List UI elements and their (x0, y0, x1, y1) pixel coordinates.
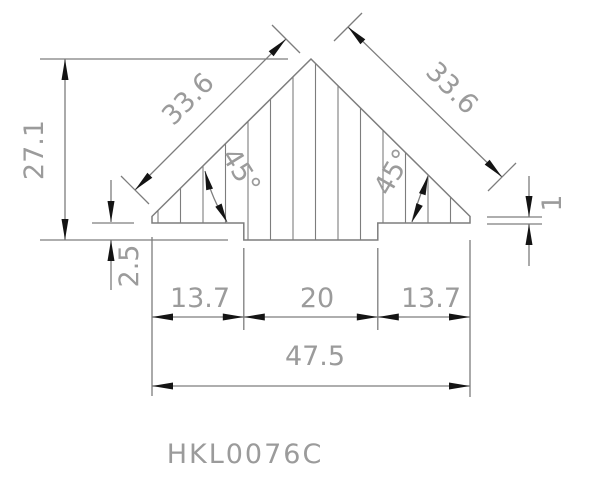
dim-angle-right: 45° (368, 144, 428, 222)
dim-slope-left-label: 33.6 (156, 67, 220, 131)
dim-angle-right-label: 45° (368, 144, 419, 201)
dim-slope-left: 33.6 (121, 25, 300, 204)
dim-slope-right-label: 33.6 (419, 56, 483, 120)
dim-angle-left-label: 45° (215, 143, 267, 200)
dim-overall-width: 47.5 (152, 341, 470, 390)
dim-step-depth: 2.5 (92, 180, 145, 290)
dim-tip-height-label: 1 (537, 194, 568, 211)
technical-drawing: 27.1 2.5 1 33.6 33.6 (0, 0, 600, 495)
dim-bottom-left-label: 13.7 (170, 283, 230, 314)
dim-bottom-chain: 13.7 20 13.7 (152, 237, 470, 397)
part-number-label: HKL0076C (167, 439, 324, 470)
dim-step-depth-label: 2.5 (114, 245, 145, 288)
dim-slope-right: 33.6 (334, 13, 516, 191)
dim-bottom-center-label: 20 (300, 283, 334, 314)
dim-overall-width-label: 47.5 (285, 341, 345, 372)
dim-height-label: 27.1 (19, 120, 50, 180)
dim-tip-height: 1 (487, 176, 568, 266)
dim-bottom-right-label: 13.7 (401, 283, 461, 314)
cad-drawing-canvas: 27.1 2.5 1 33.6 33.6 (0, 0, 600, 495)
